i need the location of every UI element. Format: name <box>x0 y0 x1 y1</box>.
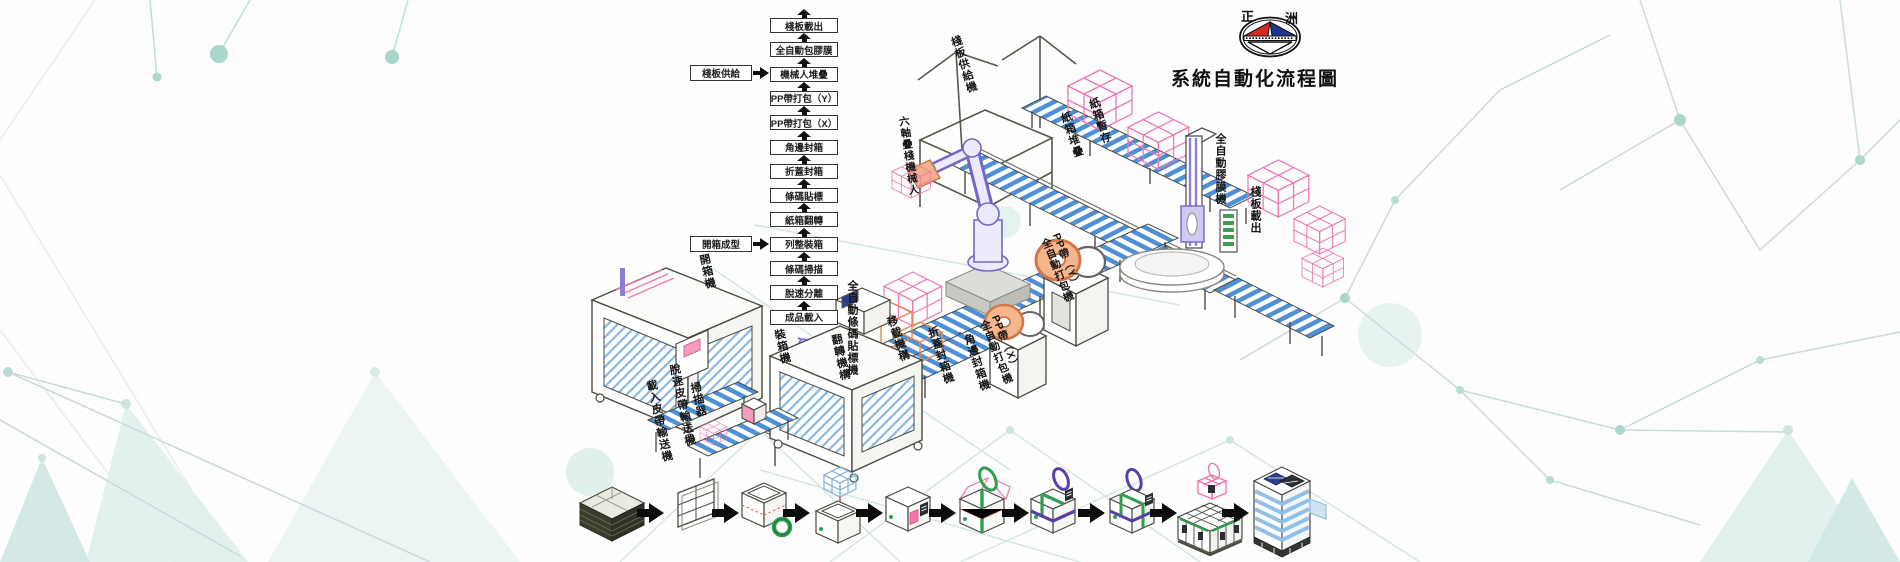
label-pp-strapper-y: PP帶（Y）全自動打包機 <box>1039 232 1087 305</box>
flow-arrow-up-icon <box>797 179 811 188</box>
stage-pallet-wrapping-icon <box>1248 465 1332 561</box>
pink-robot-gripper <box>1198 463 1226 499</box>
flow-arrow-up-icon <box>797 301 811 310</box>
flow-box: 棧板載出 <box>770 18 838 33</box>
flow-box: 折蓋封箱 <box>770 164 838 179</box>
label-infeed-belt-conveyor: 載入皮帶輸送機 <box>644 379 673 464</box>
logo-char-right: 洲 <box>1285 8 1298 27</box>
side-arrow-right-icon <box>753 67 770 79</box>
flow-box: PP帶打包（Y） <box>770 91 838 106</box>
flow-arrow-up-icon <box>797 131 811 140</box>
stage-arrow-icon <box>712 503 739 523</box>
flow-box: 列整裝箱 <box>770 237 838 252</box>
strap-loop <box>1051 466 1072 491</box>
flow-arrow-up-icon <box>797 106 811 115</box>
company-logo: 正 洲 <box>1215 4 1325 62</box>
logo-emblem <box>1215 4 1325 62</box>
stage-arrow-icon <box>637 503 664 523</box>
flow-box: 全自動包膠膜 <box>770 42 838 57</box>
film-tail <box>1310 499 1326 519</box>
stage-arrow-icon <box>1078 503 1105 523</box>
flow-arrow-up-icon <box>797 155 811 164</box>
product-stack <box>824 467 856 497</box>
flow-arrow-up-icon <box>797 9 811 18</box>
stage-arrow-icon <box>856 503 883 523</box>
strap-loop <box>1124 467 1144 492</box>
side-arrow-right-icon <box>753 238 770 250</box>
stage-arrow-icon <box>929 503 956 523</box>
packaging-stage-row <box>560 463 1340 562</box>
banner-canvas: 棧板載出 全自動包膠膜 機械人堆疊 PP帶打包（Y） PP帶打包（X） 角邊封箱… <box>0 0 1900 562</box>
flow-arrow-up-icon <box>797 203 811 212</box>
label-scanner: 掃描器 <box>688 381 707 419</box>
flow-arrow-up-icon <box>797 252 811 261</box>
flow-box: 條碼貼標 <box>770 188 838 203</box>
flow-box: 條碼掃描 <box>770 261 838 276</box>
label-pallet-feeder: 棧板供給機 <box>948 34 978 95</box>
label-box-opener: 開箱機 <box>697 253 716 291</box>
flow-arrow-up-icon <box>797 228 811 237</box>
overlay-layer: 棧板載出 全自動包膠膜 機械人堆疊 PP帶打包（Y） PP帶打包（X） 角邊封箱… <box>0 0 1900 562</box>
flow-box: 機械人堆疊 <box>770 67 838 82</box>
flow-box: 成品載入 <box>770 310 838 325</box>
label-carton-stacking: 紙箱堆疊 <box>1058 110 1084 159</box>
label-case-packer: 裝箱機 <box>772 328 791 366</box>
label-six-axis-robot: 六軸疊棧機械人 <box>897 115 920 196</box>
flow-box: 脫速分離 <box>770 285 838 300</box>
stage-arrow-icon <box>783 503 810 523</box>
flow-arrow-up-icon <box>797 58 811 67</box>
label-barcode-labeler: 全自動條碼貼標機 <box>846 280 858 376</box>
label-carton-buffer: 紙箱暫存 <box>1086 96 1112 145</box>
label-flap-sealer: 折蓋封箱機 <box>925 325 955 386</box>
label-transfer-unit: 移載機構 <box>884 314 910 363</box>
label-pallet-out: 棧板載出 <box>1249 186 1261 234</box>
side-label-pallet-supply: 棧板供給 <box>690 65 752 81</box>
flow-arrow-up-icon <box>797 33 811 42</box>
flow-box: PP帶打包（X） <box>770 115 838 130</box>
label-stretch-wrapper: 全自動膠膜機 <box>1214 133 1226 205</box>
stage-arrow-icon <box>1222 503 1249 523</box>
side-label-box-forming: 開箱成型 <box>690 236 752 252</box>
flow-arrow-up-icon <box>797 276 811 285</box>
flow-box: 紙箱翻轉 <box>770 212 838 227</box>
flow-box: 角邊封箱 <box>770 140 838 155</box>
flow-arrow-up-icon <box>797 82 811 91</box>
stage-arrow-icon <box>1150 503 1177 523</box>
diagram-title: 系統自動化流程圖 <box>1171 64 1351 91</box>
logo-char-left: 正 <box>1241 6 1254 25</box>
stage-strapping-x-icon <box>1025 465 1085 549</box>
